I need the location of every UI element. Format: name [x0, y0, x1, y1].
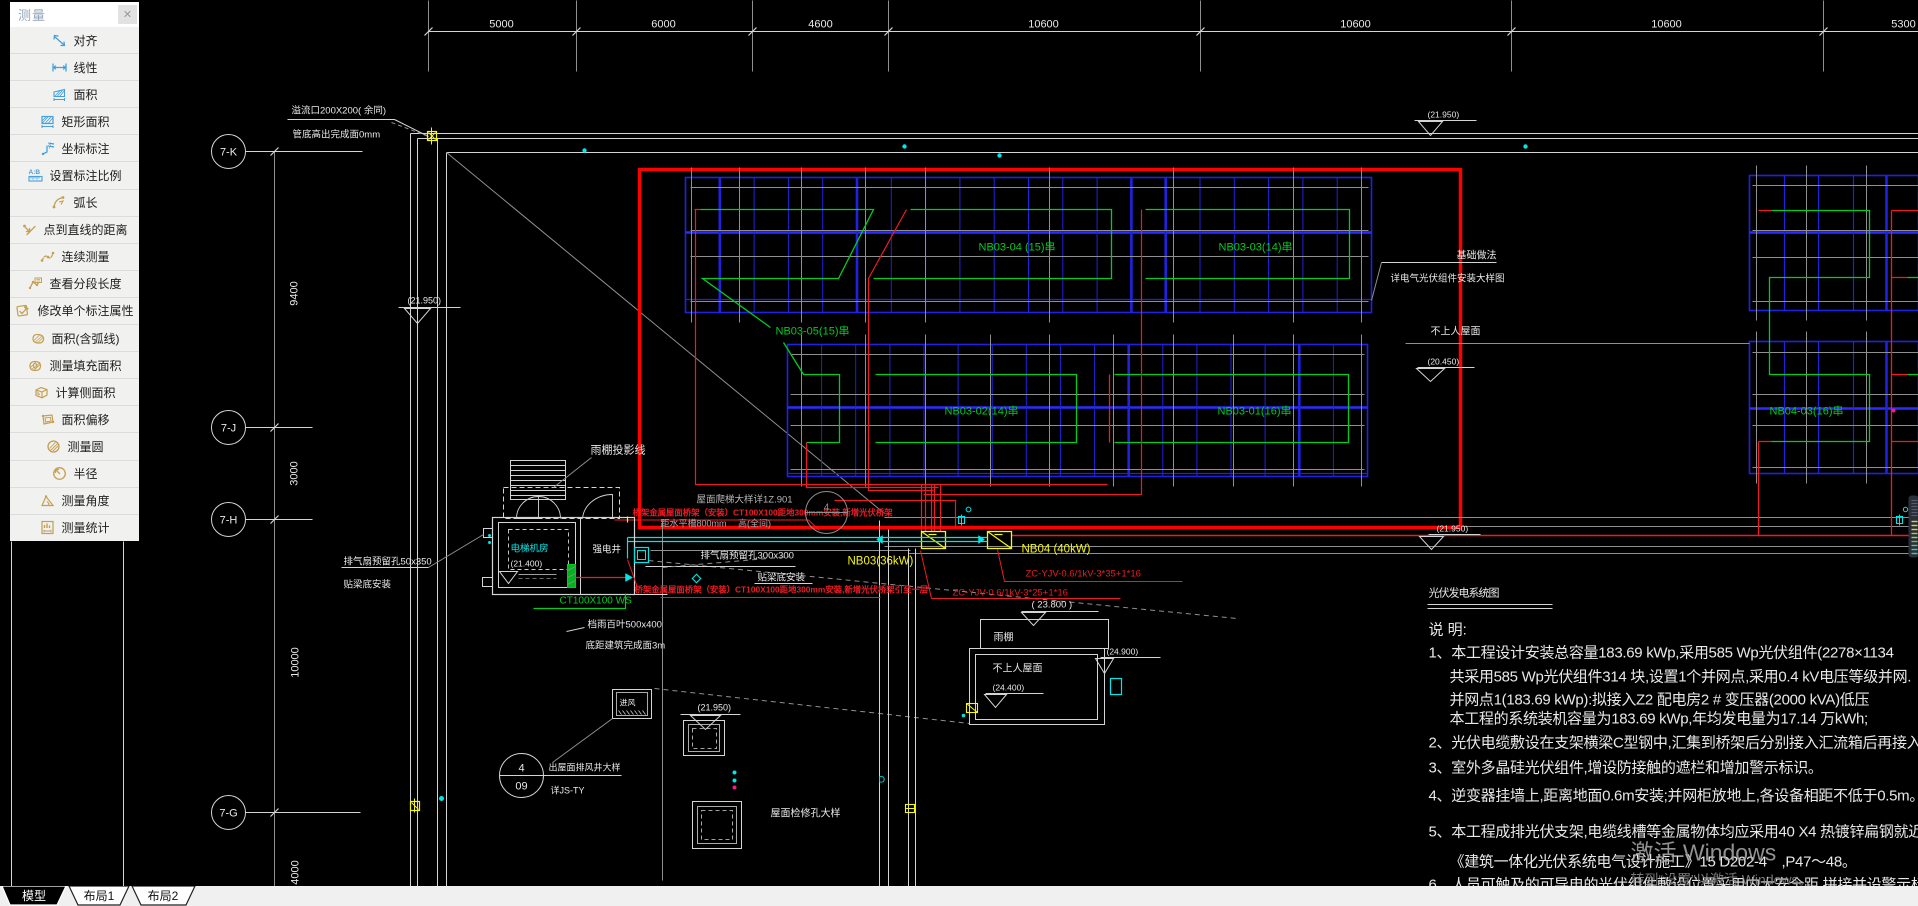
- svg-text:屋面检修孔大样: 屋面检修孔大样: [771, 807, 841, 820]
- svg-text:NB03-02(14)串: NB03-02(14)串: [945, 405, 1019, 418]
- svg-text:(21.950): (21.950): [1428, 110, 1460, 120]
- svg-text:D: D: [879, 775, 886, 785]
- svg-text:A:B: A:B: [29, 169, 41, 176]
- svg-text:排气扇预留孔50x350: 排气扇预留孔50x350: [344, 556, 432, 568]
- svg-text:Y=: Y=: [48, 145, 54, 151]
- svg-text:CT100X100 WS: CT100X100 WS: [560, 596, 633, 607]
- svg-text:4: 4: [518, 763, 524, 775]
- svg-text:管底高出完成面0mm: 管底高出完成面0mm: [293, 129, 381, 141]
- svg-text:7-H: 7-H: [220, 515, 238, 527]
- svg-text:共采用585 Wp光伏组件314 块,设置1个并网点,采用0: 共采用585 Wp光伏组件314 块,设置1个并网点,采用0.4 kV电压等级并…: [1450, 668, 1912, 686]
- svg-text:档雨百叶500x400: 档雨百叶500x400: [588, 619, 662, 631]
- svg-text:3000: 3000: [289, 461, 301, 485]
- svg-text:5300: 5300: [1891, 19, 1915, 31]
- svg-text:4: 4: [824, 503, 830, 514]
- svg-text:贴梁底安装: 贴梁底安装: [758, 572, 806, 584]
- svg-text:并网点1(183.69 kWp):拟接入Z2 配电房2 #: 并网点1(183.69 kWp):拟接入Z2 配电房2 # 变压器(2000 k…: [1450, 692, 1870, 709]
- svg-text:(20.450): (20.450): [1428, 357, 1460, 367]
- svg-text:本工程的系统装机容量为183.69 kWp,年均发电量为17: 本工程的系统装机容量为183.69 kWp,年均发电量为17.14 万kWh;: [1450, 711, 1868, 728]
- svg-text:NB03-03(14)串: NB03-03(14)串: [1219, 241, 1293, 254]
- svg-text:(24.400): (24.400): [993, 683, 1025, 693]
- svg-text:6000: 6000: [651, 19, 675, 31]
- svg-text:布局2: 布局2: [148, 889, 179, 903]
- svg-text:09: 09: [515, 781, 527, 793]
- svg-text:详JS-TY: 详JS-TY: [551, 785, 585, 796]
- svg-text:7-G: 7-G: [219, 808, 237, 820]
- svg-text:说 明:: 说 明:: [1429, 622, 1467, 639]
- svg-text:10600: 10600: [1340, 19, 1371, 31]
- svg-text:7-J: 7-J: [221, 423, 236, 435]
- svg-text:ZC-YJV-0.6/1kV-3*35+1*16: ZC-YJV-0.6/1kV-3*35+1*16: [1026, 569, 1141, 580]
- svg-text:NB03-04 (15)串: NB03-04 (15)串: [979, 241, 1056, 254]
- svg-text:雨棚: 雨棚: [994, 631, 1014, 644]
- svg-text:10600: 10600: [1028, 19, 1059, 31]
- svg-text:不上人屋面: 不上人屋面: [993, 663, 1043, 675]
- svg-text:溢流口200X200( 余同): 溢流口200X200( 余同): [292, 105, 387, 117]
- svg-text:详电气光伏组件安装大样图: 详电气光伏组件安装大样图: [1391, 273, 1505, 285]
- svg-text:雨棚投影线: 雨棚投影线: [591, 443, 646, 457]
- svg-text:5000: 5000: [489, 19, 513, 31]
- svg-text:桥架金属屋面桥架（安装）CT100X100距地300mm安装: 桥架金属屋面桥架（安装）CT100X100距地300mm安装,新增光伏桥架: [633, 508, 894, 518]
- svg-text:进风: 进风: [620, 699, 636, 708]
- svg-text:NB03-05(15)串: NB03-05(15)串: [776, 325, 850, 338]
- svg-text:2、光伏电缆敷设在支架横梁C型钢中,汇集到桥架后分别接入汇流: 2、光伏电缆敷设在支架横梁C型钢中,汇集到桥架后分别接入汇流箱后再接入相: [1429, 734, 1918, 752]
- svg-text:NB04-03(16)串: NB04-03(16)串: [1770, 405, 1844, 418]
- svg-text:7-K: 7-K: [220, 147, 238, 159]
- svg-text:NB03(36kW): NB03(36kW): [848, 556, 914, 568]
- svg-text:电梯机房: 电梯机房: [511, 543, 549, 555]
- svg-text:3、室外多晶硅光伏组件,增设防接触的遮栏和增加警示标识。: 3、室外多晶硅光伏组件,增设防接触的遮栏和增加警示标识。: [1429, 760, 1823, 777]
- svg-text:NB04 (40kW): NB04 (40kW): [1022, 544, 1091, 556]
- svg-text:不上人屋面: 不上人屋面: [1431, 326, 1481, 338]
- svg-text:贴梁底安装: 贴梁底安装: [344, 579, 392, 591]
- svg-text:激活 Windows: 激活 Windows: [1631, 840, 1777, 866]
- svg-text:1、本工程设计安装总容量183.69 kWp,采用585 W: 1、本工程设计安装总容量183.69 kWp,采用585 Wp光伏组件(2278…: [1429, 645, 1894, 662]
- svg-text:基础做法: 基础做法: [1457, 249, 1497, 262]
- svg-text:桥架金属屋面桥架（安装）CT100X100距地300mm安装: 桥架金属屋面桥架（安装）CT100X100距地300mm安装,新增光伏桥架引至一…: [635, 585, 929, 595]
- svg-text:(24.900): (24.900): [1107, 647, 1139, 657]
- svg-text:(21.950): (21.950): [408, 296, 442, 306]
- svg-text:4600: 4600: [808, 19, 832, 31]
- svg-text:屋面爬梯大样详1Z.901: 屋面爬梯大样详1Z.901: [697, 494, 793, 506]
- svg-text:4、逆变器挂墙上,距离地面0.6m安装;并网柜放地上,各设备: 4、逆变器挂墙上,距离地面0.6m安装;并网柜放地上,各设备相距不低于0.5m。: [1429, 788, 1918, 805]
- svg-text:10000: 10000: [290, 647, 302, 678]
- svg-text:排气扇预留孔300x300: 排气扇预留孔300x300: [701, 550, 794, 562]
- svg-text:(21.950): (21.950): [698, 703, 732, 713]
- svg-text:底距建筑完成面3m: 底距建筑完成面3m: [586, 640, 666, 652]
- svg-text:ZC-YJV-0.6/1kV-3*25+1*16: ZC-YJV-0.6/1kV-3*25+1*16: [953, 588, 1068, 599]
- svg-text:10600: 10600: [1651, 19, 1682, 31]
- svg-text:(21.950): (21.950): [1437, 524, 1469, 534]
- svg-text:5、本工程成排光伏支架,电缆线槽等金属物体均应采用40 X4: 5、本工程成排光伏支架,电缆线槽等金属物体均应采用40 X4 热镀锌扁钢就近与: [1429, 823, 1918, 841]
- svg-text:(21.400): (21.400): [511, 559, 543, 569]
- svg-text:光伏发电系统图: 光伏发电系统图: [1429, 586, 1500, 600]
- svg-text:布局1: 布局1: [84, 889, 115, 903]
- svg-text:强电井: 强电井: [593, 544, 622, 556]
- svg-text:9400: 9400: [289, 281, 301, 305]
- svg-text:( 23.800 ): ( 23.800 ): [1032, 600, 1073, 611]
- svg-text:模型: 模型: [22, 889, 46, 903]
- svg-text:4000: 4000: [290, 860, 302, 884]
- svg-text:出屋面排风井大样: 出屋面排风井大样: [549, 762, 621, 773]
- svg-text:NB03-01(16)串: NB03-01(16)串: [1218, 405, 1292, 418]
- svg-text:距水平槽800mm 高(全间): 距水平槽800mm 高(全间): [661, 518, 772, 529]
